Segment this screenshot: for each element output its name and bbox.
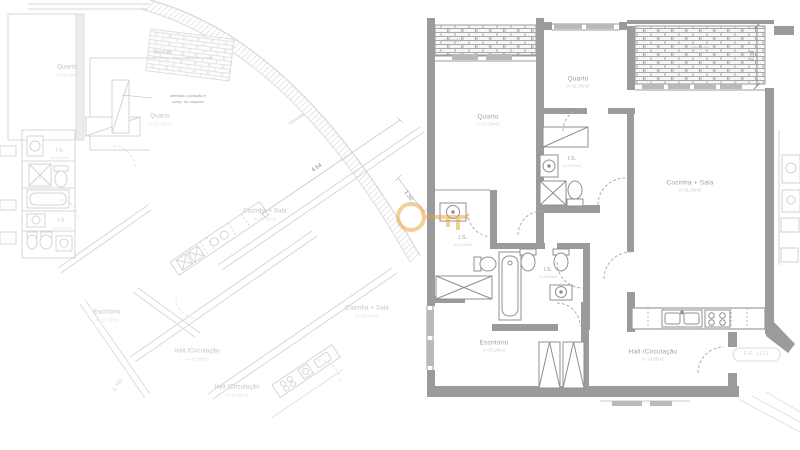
room-area: A=13.10m2 (476, 123, 499, 128)
room-label-zona-tecnica: Z. Téc. (112, 377, 125, 393)
room-label-is: I.S. (567, 156, 576, 162)
room-area: A=31.80m2 (678, 189, 701, 194)
room-area: A=10.85m2 (641, 358, 664, 363)
room-label-cozinha-sala: Cozinha + Sala (243, 209, 287, 216)
room-label-is: I.S. (458, 235, 467, 241)
room-area: A=4.25m2 (454, 243, 472, 247)
room-area: A=4.00m2 (51, 156, 69, 160)
room-label-quarto: Quarto (477, 113, 498, 120)
room-label-escritorio: Escritório (93, 310, 120, 317)
floorplan-canvas: Quarto A=13.00m2 Quarto A=11.20m2 Varand… (0, 0, 800, 450)
room-area: A=31.80m2 (355, 315, 378, 320)
room-area: A=4.00m2 (563, 164, 581, 168)
annotation-note-line2: comp. do roupeiro (172, 100, 204, 104)
room-label-is: I.S. (58, 218, 66, 224)
room-label-is: I.S. (56, 148, 64, 154)
room-label-varanda: Varanda (154, 50, 173, 56)
annotation-note-line1: alterada a posição e (170, 94, 206, 98)
room-label-hall: Hall /Circulação (214, 385, 259, 392)
room-area: A=31.80m2 (253, 218, 276, 223)
dimension-label: 4.64 (311, 162, 323, 173)
room-label-hall: Hall /Circulação (174, 349, 219, 356)
room-label-varanda: Varanda (288, 113, 306, 128)
dimension-label: 2.08 (750, 51, 756, 62)
room-area: A=10.25m2 (95, 319, 118, 324)
room-label-escritorio: Escritório (479, 339, 508, 346)
labels-layer: Quarto A=13.00m2 Quarto A=11.20m2 Varand… (0, 0, 800, 450)
room-label-varanda: Varanda (444, 39, 461, 44)
room-area: A=11.05m2 (567, 85, 590, 90)
room-area: A=10.00m2 (185, 358, 208, 363)
room-area: A=10.25m2 (482, 349, 505, 354)
room-area: A=11.20m2 (149, 123, 172, 128)
room-label-hall: Hall /Circulação (629, 348, 678, 355)
room-label-is: I.S. (543, 267, 552, 273)
room-area: A=4.50m2 (53, 226, 71, 230)
room-area: A=4.50m2 (539, 275, 557, 279)
unit-tag: F.E. (12) (744, 351, 768, 357)
room-label-varanda: Varanda (691, 46, 710, 52)
room-label-quarto: Quarto (57, 65, 77, 72)
room-label-quarto: Quarto (567, 75, 588, 82)
room-label-cozinha-sala: Cozinha + Sala (666, 179, 713, 186)
room-label-quarto: Quarto (150, 114, 170, 121)
room-area: A=13.00m2 (55, 74, 78, 79)
room-area: A=10.00m2 (225, 394, 248, 399)
room-label-cozinha-sala: Cozinha + Sala (345, 306, 389, 313)
dimension-label: 1.30 (402, 190, 413, 202)
